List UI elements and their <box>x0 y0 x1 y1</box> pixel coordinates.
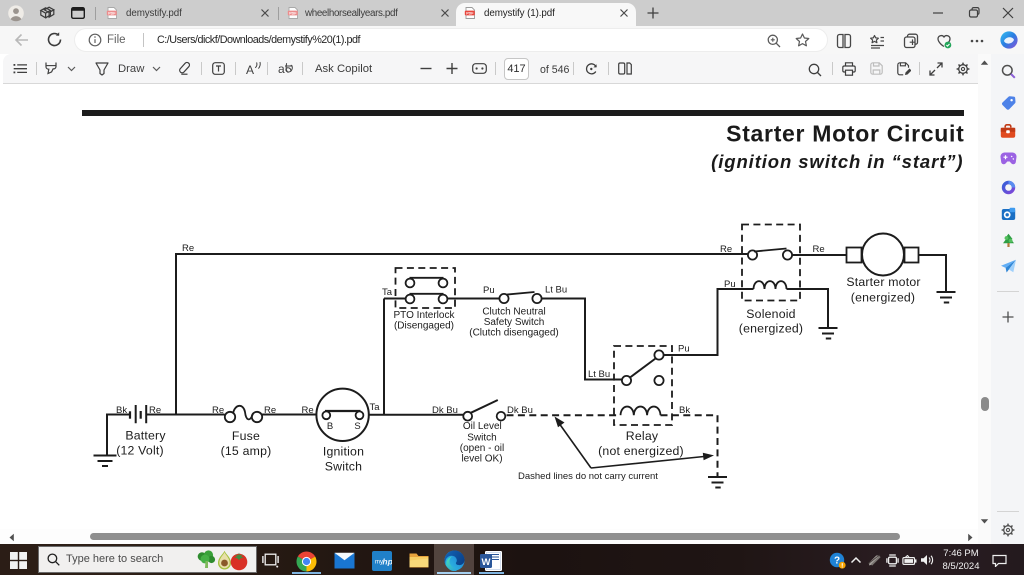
svg-text:Re: Re <box>302 405 314 416</box>
svg-text:Solenoid: Solenoid <box>746 307 795 321</box>
svg-text:Dashed lines do not carry curr: Dashed lines do not carry current <box>518 471 658 482</box>
svg-text:Lt Bu: Lt Bu <box>588 369 610 380</box>
svg-text:(Clutch disengaged): (Clutch disengaged) <box>469 328 559 339</box>
svg-text:Ta: Ta <box>382 287 393 298</box>
svg-text:Re: Re <box>813 244 825 255</box>
svg-text:hp: hp <box>382 556 392 566</box>
svg-text:Dk Bu: Dk Bu <box>432 405 458 416</box>
svg-text:Ta: Ta <box>370 402 381 413</box>
svg-text:Re: Re <box>182 243 194 254</box>
svg-text:(open - oil: (open - oil <box>460 443 504 454</box>
svg-text:(not energized): (not energized) <box>598 444 684 458</box>
svg-text:Safety Switch: Safety Switch <box>484 317 545 328</box>
svg-text:S: S <box>354 421 360 432</box>
svg-text:(Disengaged): (Disengaged) <box>394 321 454 332</box>
svg-text:Lt Bu: Lt Bu <box>545 285 567 296</box>
svg-text:Pu: Pu <box>724 279 736 290</box>
svg-text:PTO Interlock: PTO Interlock <box>394 310 456 321</box>
svg-text:Battery: Battery <box>125 429 166 443</box>
svg-text:(ignition switch in “start”): (ignition switch in “start”) <box>711 151 963 172</box>
svg-text:level OK): level OK) <box>461 454 502 465</box>
svg-text:(12 Volt): (12 Volt) <box>116 444 164 458</box>
svg-text:Oil Level: Oil Level <box>463 421 502 432</box>
svg-text:(energized): (energized) <box>739 322 803 336</box>
svg-text:Dk Bu: Dk Bu <box>507 405 533 416</box>
svg-text:Fuse: Fuse <box>232 429 260 443</box>
svg-text:B: B <box>327 421 333 432</box>
svg-text:Starter motor: Starter motor <box>846 275 920 289</box>
svg-text:Starter Motor Circuit: Starter Motor Circuit <box>726 121 964 147</box>
svg-text:Re: Re <box>149 405 161 416</box>
svg-text:Clutch Neutral: Clutch Neutral <box>482 307 545 318</box>
svg-text:(energized): (energized) <box>851 291 915 305</box>
svg-text:Re: Re <box>264 405 276 416</box>
svg-text:Pu: Pu <box>483 285 495 296</box>
svg-text:(15 amp): (15 amp) <box>221 444 272 458</box>
svg-text:Bk: Bk <box>116 405 127 416</box>
svg-text:W: W <box>482 557 491 568</box>
svg-text:Pu: Pu <box>678 344 690 355</box>
svg-text:Bk: Bk <box>679 405 690 416</box>
svg-text:Relay: Relay <box>626 429 659 443</box>
svg-text:Re: Re <box>212 405 224 416</box>
svg-text:Re: Re <box>720 244 732 255</box>
svg-text:Ignition: Ignition <box>323 445 364 459</box>
svg-text:Switch: Switch <box>467 433 496 444</box>
svg-text:Switch: Switch <box>325 460 362 474</box>
